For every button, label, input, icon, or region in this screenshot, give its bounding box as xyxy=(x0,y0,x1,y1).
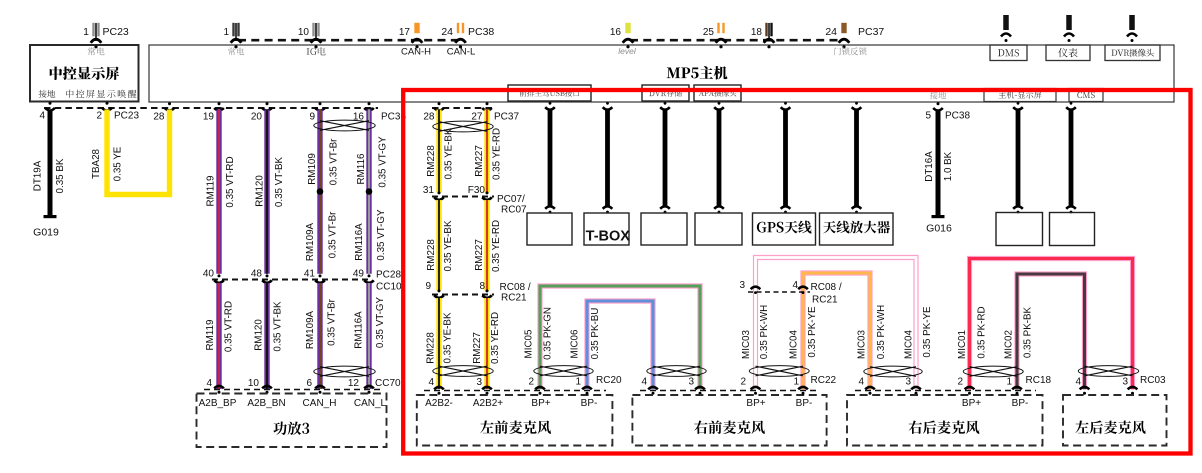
svg-text:28: 28 xyxy=(423,112,435,123)
svg-text:18: 18 xyxy=(751,27,763,38)
svg-text:MIC04: MIC04 xyxy=(903,330,914,359)
svg-text:4: 4 xyxy=(1075,377,1081,388)
svg-text:T-BOX: T-BOX xyxy=(586,228,631,244)
svg-text:4: 4 xyxy=(792,280,798,291)
svg-text:level: level xyxy=(618,46,637,56)
svg-text:3: 3 xyxy=(688,377,694,388)
svg-text:1.0 BK: 1.0 BK xyxy=(943,151,954,181)
svg-text:MIC03: MIC03 xyxy=(741,330,752,359)
svg-text:RM109: RM109 xyxy=(307,153,318,185)
svg-text:25: 25 xyxy=(703,27,715,38)
svg-text:RM109A: RM109A xyxy=(305,222,316,261)
svg-text:DT19A: DT19A xyxy=(32,160,43,191)
svg-text:0.35 PK-YE: 0.35 PK-YE xyxy=(807,306,818,358)
svg-text:0.35 VT-GY: 0.35 VT-GY xyxy=(377,136,388,188)
svg-text:0.35 PK-GN: 0.35 PK-GN xyxy=(542,307,553,360)
svg-text:16: 16 xyxy=(610,27,622,38)
svg-text:0.35 VT-Br: 0.35 VT-Br xyxy=(326,298,337,346)
svg-text:A2B2-: A2B2- xyxy=(425,398,453,409)
svg-text:PC37: PC37 xyxy=(494,112,519,123)
svg-text:RC18: RC18 xyxy=(1026,375,1052,386)
svg-text:A2B_BP: A2B_BP xyxy=(199,398,237,409)
svg-text:0.35 YE-RD: 0.35 YE-RD xyxy=(491,220,502,272)
svg-text:RM227: RM227 xyxy=(474,239,485,271)
svg-text:RC08 /: RC08 / xyxy=(811,282,842,293)
svg-text:PC23: PC23 xyxy=(103,26,129,38)
svg-text:1: 1 xyxy=(223,27,229,38)
svg-text:0.35 YE-BK: 0.35 YE-BK xyxy=(442,312,453,363)
svg-text:19: 19 xyxy=(203,112,215,123)
svg-text:4: 4 xyxy=(39,111,45,122)
svg-text:F30: F30 xyxy=(468,185,486,196)
svg-text:0.35 VT-Br: 0.35 VT-Br xyxy=(328,138,339,186)
svg-text:4: 4 xyxy=(206,378,212,389)
svg-text:9: 9 xyxy=(309,112,315,123)
svg-text:RM119: RM119 xyxy=(205,176,216,207)
svg-text:3: 3 xyxy=(739,280,745,291)
svg-text:3: 3 xyxy=(476,377,482,388)
svg-text:0.35 PK-RD: 0.35 PK-RD xyxy=(976,306,987,358)
svg-text:RM109A: RM109A xyxy=(305,310,316,349)
svg-text:MIC05: MIC05 xyxy=(523,329,534,358)
svg-text:RC03: RC03 xyxy=(1140,375,1166,386)
svg-text:10: 10 xyxy=(248,378,260,389)
svg-text:6: 6 xyxy=(306,378,312,389)
svg-text:MIC03: MIC03 xyxy=(856,330,867,359)
svg-text:RM228: RM228 xyxy=(425,332,436,364)
svg-text:MIC06: MIC06 xyxy=(569,329,580,358)
svg-text:0.35 VT-Br: 0.35 VT-Br xyxy=(327,211,338,259)
svg-text:A2B2+: A2B2+ xyxy=(473,398,503,409)
svg-text:RM227: RM227 xyxy=(472,332,483,364)
svg-text:1: 1 xyxy=(793,377,799,388)
svg-text:0.35 YE-RD: 0.35 YE-RD xyxy=(490,312,501,364)
svg-text:28: 28 xyxy=(153,112,165,123)
svg-text:CC70: CC70 xyxy=(375,378,401,389)
svg-text:4: 4 xyxy=(858,377,864,388)
svg-text:RC21: RC21 xyxy=(812,295,838,306)
svg-text:48: 48 xyxy=(251,269,263,280)
svg-text:2: 2 xyxy=(957,377,963,388)
svg-text:BP+: BP+ xyxy=(746,398,765,409)
svg-text:RC20: RC20 xyxy=(596,375,622,386)
svg-text:0.35 PK-BU: 0.35 PK-BU xyxy=(590,308,601,360)
svg-text:0.35 VT-GY: 0.35 VT-GY xyxy=(376,209,387,261)
svg-text:MIC01: MIC01 xyxy=(957,330,968,359)
svg-text:PC38: PC38 xyxy=(468,26,494,38)
svg-text:RM228: RM228 xyxy=(426,145,437,177)
svg-text:DT16A: DT16A xyxy=(924,151,935,182)
svg-text:4: 4 xyxy=(641,377,647,388)
svg-text:RM120: RM120 xyxy=(254,175,265,207)
svg-text:2: 2 xyxy=(96,111,102,122)
svg-text:24: 24 xyxy=(825,26,837,38)
svg-text:BP-: BP- xyxy=(796,398,813,409)
svg-text:G016: G016 xyxy=(926,223,952,235)
svg-text:RC22: RC22 xyxy=(811,375,837,386)
svg-text:20: 20 xyxy=(251,112,263,123)
svg-text:1: 1 xyxy=(575,377,581,388)
svg-text:MIC02: MIC02 xyxy=(1003,330,1014,359)
svg-text:1: 1 xyxy=(1006,377,1012,388)
svg-text:CAN_H: CAN_H xyxy=(303,398,337,409)
svg-text:CAN_L: CAN_L xyxy=(354,398,387,409)
svg-text:G019: G019 xyxy=(33,227,59,239)
svg-text:3: 3 xyxy=(1122,377,1128,388)
svg-text:RM120: RM120 xyxy=(253,319,264,351)
svg-text:0.35 YE-BK: 0.35 YE-BK xyxy=(443,220,454,271)
svg-text:TBA28: TBA28 xyxy=(91,148,102,179)
svg-text:10: 10 xyxy=(298,27,310,38)
svg-text:1: 1 xyxy=(83,26,89,38)
svg-text:BP+: BP+ xyxy=(962,398,981,409)
svg-text:PC23: PC23 xyxy=(114,111,139,122)
svg-text:RC07: RC07 xyxy=(501,205,527,216)
svg-text:RM119: RM119 xyxy=(205,320,216,351)
svg-text:17: 17 xyxy=(399,27,411,38)
svg-text:RM116A: RM116A xyxy=(354,223,365,261)
svg-text:PC28: PC28 xyxy=(376,270,401,281)
svg-text:0.35 PK-BK: 0.35 PK-BK xyxy=(1022,306,1033,358)
svg-text:0.35 PK-WH: 0.35 PK-WH xyxy=(876,305,887,359)
svg-text:9: 9 xyxy=(425,281,431,292)
svg-text:RM228: RM228 xyxy=(426,239,437,271)
svg-text:PC07/: PC07/ xyxy=(497,194,525,205)
svg-text:CAN-H: CAN-H xyxy=(401,47,431,58)
svg-text:0.35 VT-RD: 0.35 VT-RD xyxy=(225,156,236,207)
svg-text:MIC04: MIC04 xyxy=(788,330,799,359)
svg-text:CC10: CC10 xyxy=(376,282,402,293)
svg-text:PC37: PC37 xyxy=(858,26,884,38)
svg-text:0.35 PK-WH: 0.35 PK-WH xyxy=(759,305,770,359)
svg-text:8: 8 xyxy=(479,281,485,292)
svg-text:BP-: BP- xyxy=(1012,398,1029,409)
svg-text:5: 5 xyxy=(925,111,931,122)
svg-text:0.35 BK: 0.35 BK xyxy=(55,158,66,193)
svg-text:CAN-L: CAN-L xyxy=(447,47,476,58)
svg-text:RM227: RM227 xyxy=(474,145,485,177)
svg-text:49: 49 xyxy=(353,269,365,280)
svg-text:0.35 VT-BK: 0.35 VT-BK xyxy=(272,301,283,352)
svg-text:2: 2 xyxy=(528,377,534,388)
svg-text:27: 27 xyxy=(471,112,483,123)
svg-text:0.35 YE: 0.35 YE xyxy=(112,146,123,181)
svg-text:0.35 VT-RD: 0.35 VT-RD xyxy=(223,301,234,352)
svg-text:RM116: RM116 xyxy=(356,153,367,184)
svg-text:31: 31 xyxy=(423,185,435,196)
svg-text:2: 2 xyxy=(740,377,746,388)
svg-text:24: 24 xyxy=(441,26,453,38)
svg-text:0.35 VT-BK: 0.35 VT-BK xyxy=(274,156,285,207)
svg-text:41: 41 xyxy=(304,269,316,280)
svg-text:4: 4 xyxy=(428,377,434,388)
svg-text:RC08 /: RC08 / xyxy=(500,282,531,293)
svg-text:0.35 YE-RD: 0.35 YE-RD xyxy=(491,128,502,180)
svg-text:0.35 PK-YE: 0.35 PK-YE xyxy=(922,306,933,358)
svg-text:RM116A: RM116A xyxy=(353,311,364,349)
svg-text:BP+: BP+ xyxy=(531,398,550,409)
svg-text:RC21: RC21 xyxy=(501,293,527,304)
svg-text:0.35 YE-BK: 0.35 YE-BK xyxy=(443,128,454,179)
svg-text:40: 40 xyxy=(203,269,215,280)
svg-text:3: 3 xyxy=(905,377,911,388)
svg-text:A2B_BN: A2B_BN xyxy=(247,398,285,409)
svg-text:BP-: BP- xyxy=(581,398,598,409)
svg-text:0.35 VT-GY: 0.35 VT-GY xyxy=(375,296,386,348)
svg-text:PC38: PC38 xyxy=(945,111,970,122)
svg-text:12: 12 xyxy=(348,378,360,389)
